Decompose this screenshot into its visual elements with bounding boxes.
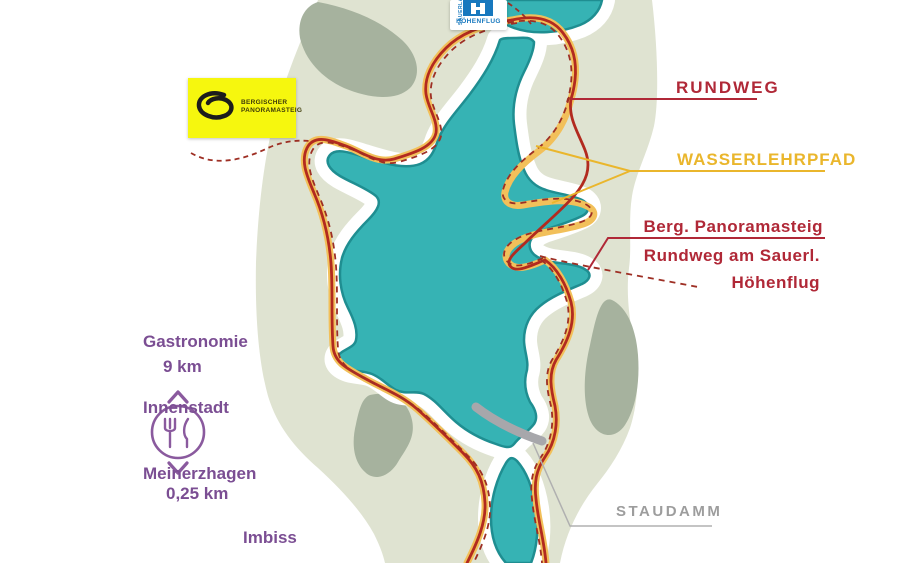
- rundweg-label: RUNDWEG: [676, 78, 780, 98]
- rundweg-sauerl-label-line1: Rundweg am Sauerl.: [644, 246, 820, 266]
- trail-map: SAUERLAND HÖHENFLUG BERGISCHER PANORAMAS…: [0, 0, 900, 563]
- bergischer-panoramasteig-badge: BERGISCHER PANORAMASTEIG: [188, 78, 296, 138]
- imbiss-distance: 0,25 km: [166, 483, 228, 505]
- staudamm-label: STAUDAMM: [616, 503, 722, 520]
- panoramasteig-logo: [194, 88, 240, 128]
- sauerland-hoehenflug-badge: SAUERLAND HÖHENFLUG: [450, 0, 507, 30]
- wasserlehrpfad-label: WASSERLEHRPFAD: [677, 150, 856, 170]
- bergischer-badge-text: BERGISCHER PANORAMASTEIG: [241, 99, 302, 115]
- imbiss-label: Imbiss Motorradtreff Aggertalsperre: [243, 483, 364, 563]
- hoehenflug-label: HÖHENFLUG: [450, 18, 507, 25]
- rundweg-sauerl-label-line2: Höhenflug: [731, 273, 820, 293]
- gastronomie-label: Gastronomie Innenstadt Meinerzhagen: [143, 287, 256, 507]
- berg-panoramasteig-label: Berg. Panoramasteig: [643, 217, 823, 237]
- hoehenflug-logo: [463, 0, 493, 16]
- gastronomie-distance: 9 km: [163, 356, 202, 378]
